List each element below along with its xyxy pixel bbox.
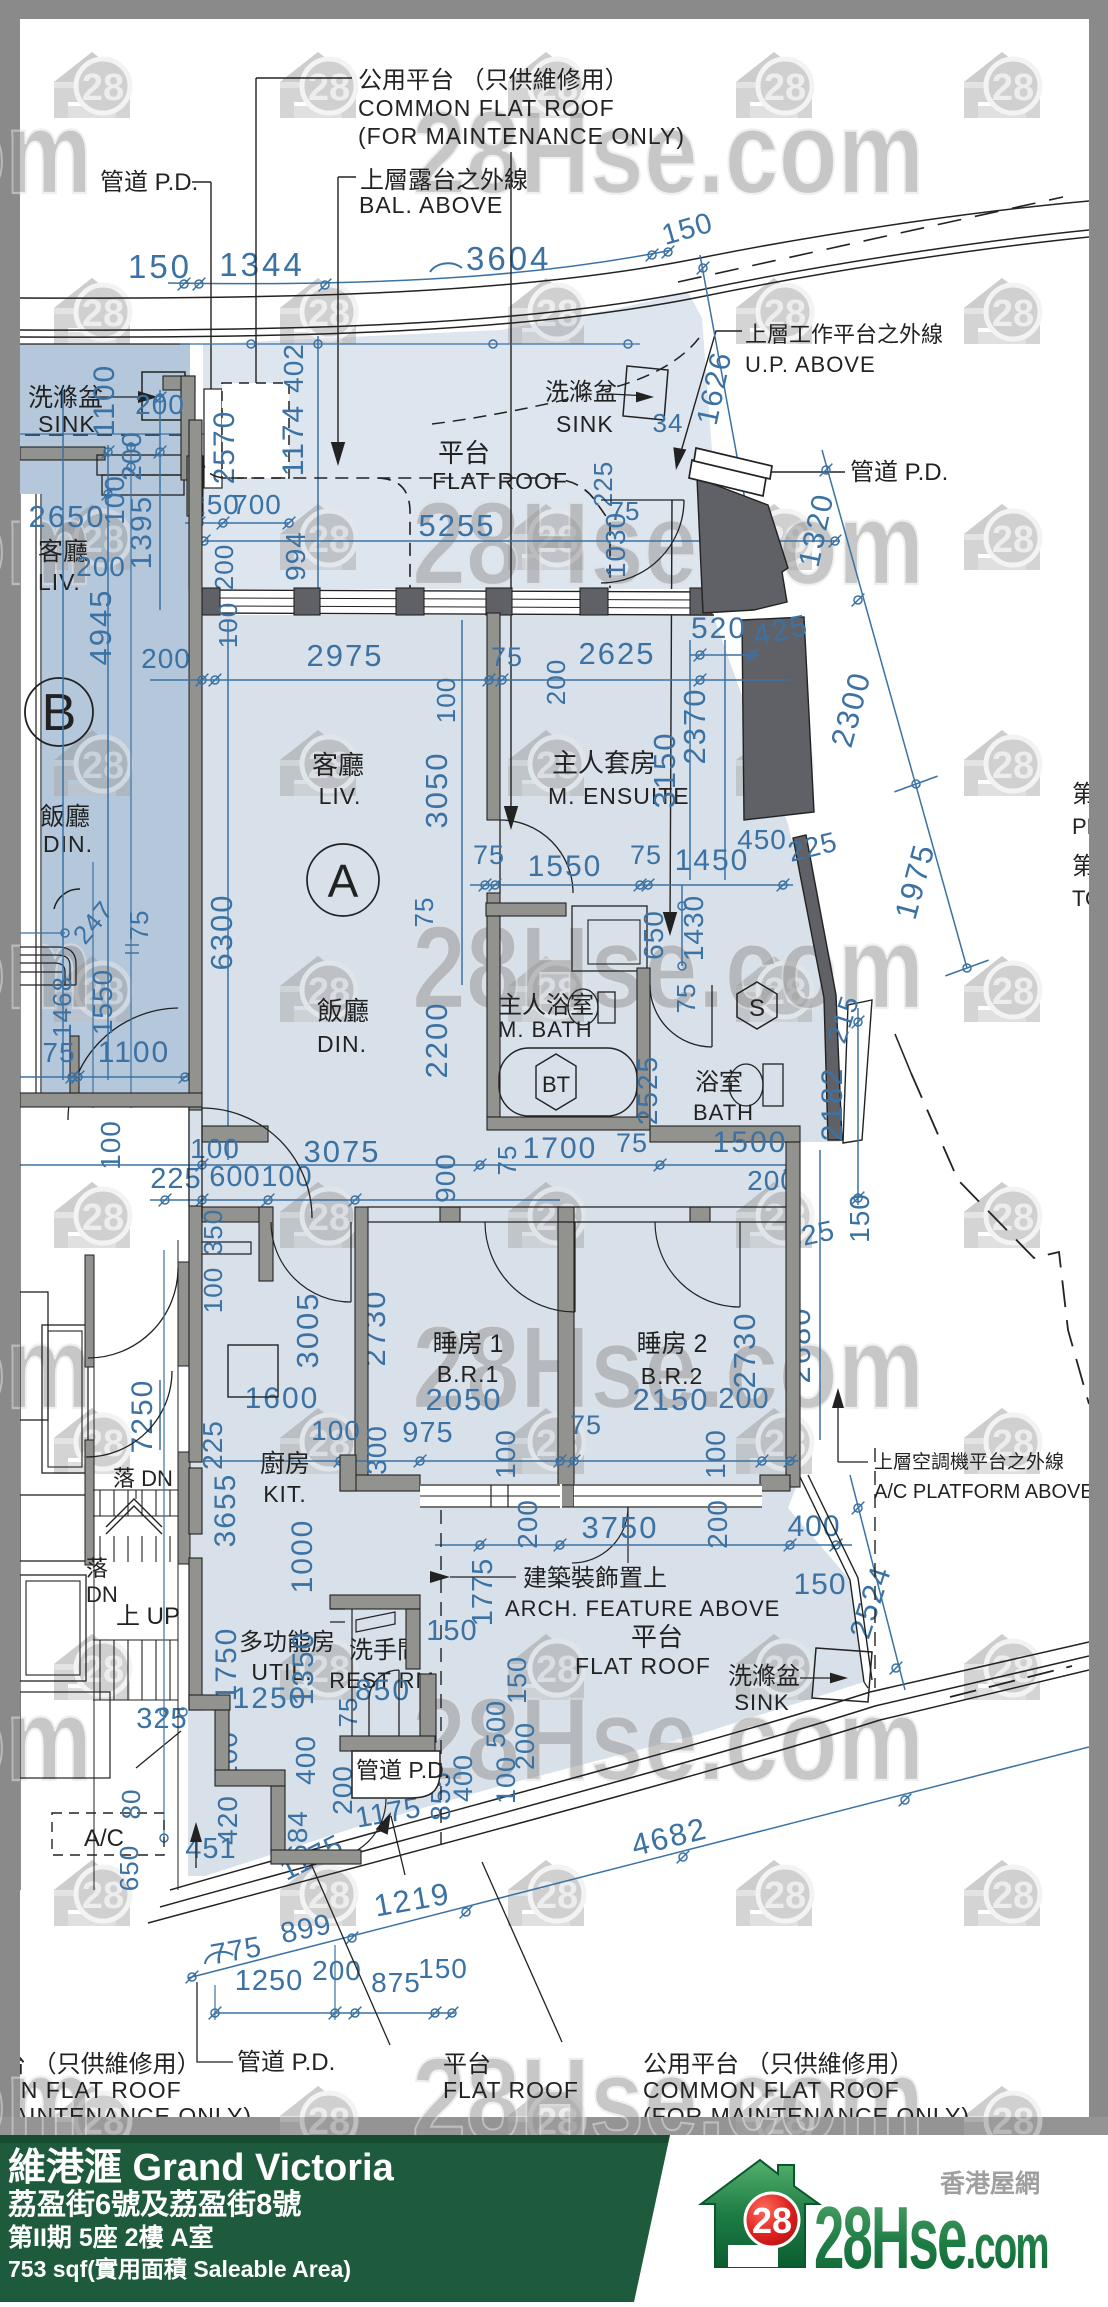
- svg-text:BATH: BATH: [693, 1100, 754, 1125]
- svg-text:150: 150: [128, 248, 192, 285]
- svg-text:1500: 1500: [713, 1126, 788, 1159]
- svg-text:DIN.: DIN.: [317, 1031, 367, 1057]
- svg-text:80: 80: [116, 1789, 146, 1820]
- svg-text:COMMON FLAT ROOF: COMMON FLAT ROOF: [358, 95, 615, 121]
- svg-text:FLAT ROOF: FLAT ROOF: [575, 1653, 711, 1679]
- svg-text:200: 200: [541, 659, 571, 705]
- svg-text:300: 300: [361, 1425, 392, 1475]
- svg-text:3604: 3604: [466, 240, 551, 277]
- svg-text:2975: 2975: [307, 638, 384, 673]
- svg-text:75: 75: [491, 642, 523, 672]
- svg-text:上 UP: 上 UP: [116, 1603, 180, 1630]
- svg-text:200: 200: [141, 643, 191, 674]
- svg-text:客廳: 客廳: [312, 750, 364, 780]
- svg-text:1100: 1100: [88, 364, 121, 437]
- svg-text:100: 100: [213, 602, 243, 648]
- svg-text:2625: 2625: [579, 636, 656, 671]
- svg-text:200: 200: [512, 1499, 543, 1549]
- svg-text:1468: 1468: [47, 976, 77, 1038]
- svg-text:SINK: SINK: [556, 411, 614, 437]
- svg-text:225: 225: [150, 1163, 201, 1195]
- svg-text:睡房 2: 睡房 2: [637, 1330, 708, 1358]
- svg-text:U.P. ABOVE: U.P. ABOVE: [745, 352, 876, 377]
- svg-text:主人浴室: 主人浴室: [498, 992, 594, 1019]
- svg-text:平台: 平台: [631, 1622, 683, 1652]
- svg-text:700: 700: [232, 489, 282, 520]
- svg-text:150: 150: [793, 1568, 846, 1601]
- svg-text:1030: 1030: [600, 512, 631, 578]
- svg-text:管道 P.D.: 管道 P.D.: [356, 1757, 450, 1783]
- svg-text:管道 P.D.: 管道 P.D.: [237, 2049, 335, 2076]
- svg-text:FLAT ROOF: FLAT ROOF: [443, 2077, 579, 2103]
- svg-text:34: 34: [653, 408, 684, 438]
- svg-text:3005: 3005: [290, 1292, 325, 1369]
- svg-text:香港屋網: 香港屋網: [940, 2169, 1040, 2198]
- svg-text:2150: 2150: [633, 1382, 710, 1417]
- svg-text:400: 400: [448, 1754, 478, 1802]
- svg-text:75: 75: [42, 1037, 75, 1068]
- svg-text:上層空調機平台之外線: 上層空調機平台之外線: [874, 1451, 1064, 1473]
- svg-text:600: 600: [209, 1161, 260, 1193]
- svg-text:75: 75: [630, 840, 662, 870]
- svg-text:3050: 3050: [419, 752, 454, 829]
- svg-text:1430: 1430: [678, 895, 709, 961]
- svg-text:28: 28: [752, 2200, 792, 2241]
- svg-text:BT: BT: [542, 1072, 570, 1097]
- svg-text:75: 75: [124, 910, 154, 941]
- svg-text:100: 100: [431, 677, 461, 723]
- svg-text:LIV.: LIV.: [319, 783, 362, 809]
- svg-text:廚房: 廚房: [260, 1450, 310, 1478]
- svg-text:洗滌盆: 洗滌盆: [728, 1663, 800, 1690]
- svg-text:200: 200: [209, 544, 239, 590]
- svg-text:平台: 平台: [443, 2051, 491, 2078]
- svg-text:KIT.: KIT.: [263, 1481, 307, 1507]
- svg-text:1395: 1395: [125, 495, 158, 570]
- svg-text:650: 650: [114, 1845, 144, 1891]
- svg-text:100: 100: [95, 1120, 126, 1170]
- svg-text:2182: 2182: [816, 1067, 849, 1142]
- svg-text:100: 100: [490, 1429, 521, 1479]
- svg-text:1775: 1775: [467, 1558, 499, 1627]
- svg-text:900: 900: [430, 1153, 461, 1203]
- svg-text:1550: 1550: [87, 969, 118, 1035]
- svg-text:COMMON FLAT ROOF: COMMON FLAT ROOF: [0, 2077, 182, 2103]
- svg-text:主人套房: 主人套房: [552, 748, 656, 778]
- svg-text:400: 400: [290, 1735, 321, 1785]
- svg-text:飯廳: 飯廳: [40, 803, 90, 831]
- svg-text:150: 150: [418, 1953, 468, 1984]
- svg-text:100: 100: [190, 1133, 240, 1164]
- svg-text:1000: 1000: [286, 1519, 319, 1594]
- svg-text:1250: 1250: [235, 1965, 304, 1997]
- svg-text:3075: 3075: [304, 1134, 381, 1169]
- svg-text:A: A: [328, 855, 359, 907]
- svg-text:SINK: SINK: [734, 1690, 789, 1715]
- svg-text:睡房 1: 睡房 1: [433, 1330, 504, 1358]
- svg-text:落: 落: [86, 1556, 108, 1581]
- svg-text:(FOR MAINTENANCE ONLY): (FOR MAINTENANCE ONLY): [358, 123, 685, 149]
- svg-text:FLAT ROOF: FLAT ROOF: [432, 468, 568, 494]
- svg-text:75: 75: [570, 1410, 602, 1440]
- svg-text:BAL. ABOVE: BAL. ABOVE: [359, 192, 503, 218]
- svg-text:402: 402: [278, 343, 309, 393]
- svg-text:A/C PLATFORM ABOVE: A/C PLATFORM ABOVE: [874, 1481, 1094, 1503]
- svg-text:7250: 7250: [126, 1379, 159, 1454]
- svg-text:4945: 4945: [83, 589, 118, 666]
- svg-text:100: 100: [311, 1415, 361, 1446]
- svg-text:200: 200: [702, 1499, 733, 1549]
- svg-text:洗滌盆: 洗滌盆: [545, 379, 617, 406]
- svg-text:上層工作平台之外線: 上層工作平台之外線: [745, 322, 943, 347]
- svg-text:2730: 2730: [727, 1312, 762, 1389]
- svg-text:875: 875: [371, 1967, 421, 1998]
- svg-text:維港滙 Grand Victoria: 維港滙 Grand Victoria: [8, 2147, 395, 2189]
- svg-text:1174: 1174: [277, 404, 310, 477]
- svg-text:200: 200: [76, 551, 126, 582]
- svg-text:1600: 1600: [245, 1382, 320, 1415]
- svg-text:COMMON FLAT ROOF: COMMON FLAT ROOF: [643, 2077, 900, 2103]
- svg-text:75: 75: [333, 1697, 363, 1728]
- svg-text:公用平台 （只供維修用）: 公用平台 （只供維修用）: [0, 2051, 201, 2078]
- svg-text:ARCH. FEATURE ABOVE: ARCH. FEATURE ABOVE: [505, 1596, 780, 1621]
- svg-text:M. BATH: M. BATH: [498, 1017, 593, 1042]
- svg-text:DN: DN: [86, 1582, 118, 1607]
- svg-text:B: B: [42, 684, 77, 742]
- svg-text:3750: 3750: [582, 1510, 659, 1545]
- svg-text:公用平台 （只供維修用）: 公用平台 （只供維修用）: [358, 67, 629, 94]
- svg-text:平台: 平台: [438, 438, 490, 468]
- svg-text:荔盈街6號及荔盈街8號: 荔盈街6號及荔盈街8號: [8, 2187, 301, 2221]
- svg-text:第II期 5座 2樓 A室: 第II期 5座 2樓 A室: [8, 2223, 214, 2252]
- svg-text:850: 850: [355, 1674, 411, 1707]
- svg-text:LIV.: LIV.: [38, 569, 81, 595]
- svg-text:3655: 3655: [209, 1473, 242, 1548]
- svg-text:浴室: 浴室: [695, 1069, 743, 1096]
- svg-text:450: 450: [737, 824, 787, 855]
- svg-text:1250: 1250: [233, 1682, 308, 1715]
- svg-text:75: 75: [492, 1145, 522, 1176]
- svg-text:管道 P.D.: 管道 P.D.: [850, 459, 948, 486]
- svg-text:S: S: [749, 995, 765, 1022]
- svg-text:上層露台之外線: 上層露台之外線: [360, 167, 528, 194]
- svg-text:1344: 1344: [219, 246, 304, 283]
- svg-text:管道 P.D.: 管道 P.D.: [100, 169, 198, 196]
- svg-text:公用平台 （只供維修用）: 公用平台 （只供維修用）: [643, 2051, 914, 2078]
- svg-text:2525: 2525: [632, 1055, 663, 1125]
- svg-text:100: 100: [491, 1756, 521, 1804]
- svg-text:753 sqf(實用面積 Saleable Area): 753 sqf(實用面積 Saleable Area): [8, 2256, 351, 2282]
- svg-text:5255: 5255: [419, 508, 496, 543]
- svg-text:150: 150: [844, 1193, 875, 1243]
- svg-text:2570: 2570: [208, 410, 241, 485]
- svg-text:DIN.: DIN.: [43, 831, 93, 857]
- svg-text:建築裝飾置上: 建築裝飾置上: [523, 1565, 667, 1592]
- svg-text:520: 520: [691, 612, 747, 645]
- svg-text:2200: 2200: [419, 1002, 454, 1079]
- svg-text:1550: 1550: [528, 850, 603, 883]
- svg-text:2370: 2370: [677, 688, 712, 765]
- svg-text:200: 200: [718, 1383, 769, 1415]
- svg-text:75: 75: [616, 1128, 648, 1158]
- svg-text:100: 100: [700, 1429, 731, 1479]
- svg-text:75: 75: [409, 897, 439, 928]
- svg-text:650: 650: [638, 910, 669, 960]
- svg-text:994: 994: [280, 531, 311, 581]
- svg-text:2050: 2050: [426, 1382, 503, 1417]
- svg-text:2650: 2650: [29, 499, 106, 534]
- svg-text:975: 975: [402, 1417, 453, 1449]
- svg-text:200: 200: [312, 1955, 362, 1986]
- svg-text:500: 500: [481, 1700, 511, 1748]
- svg-text:75: 75: [473, 840, 505, 870]
- svg-text:飯廳: 飯廳: [317, 996, 369, 1026]
- svg-text:6300: 6300: [204, 894, 239, 971]
- svg-text:1700: 1700: [523, 1132, 598, 1165]
- svg-text:75: 75: [671, 983, 701, 1014]
- svg-text:150: 150: [502, 1656, 532, 1704]
